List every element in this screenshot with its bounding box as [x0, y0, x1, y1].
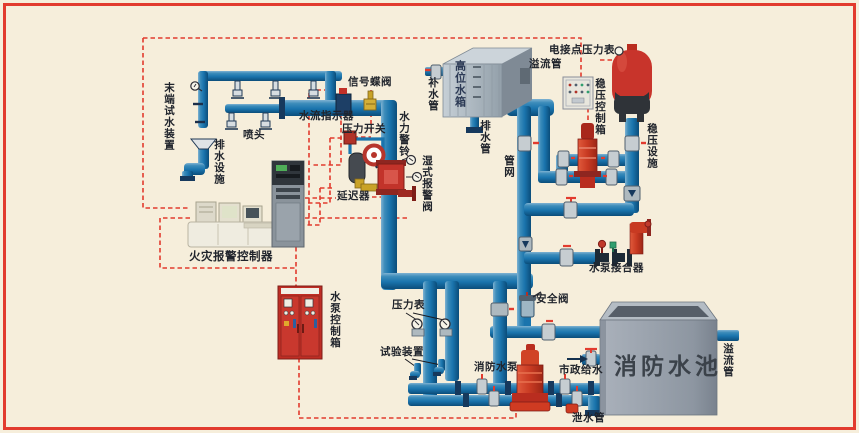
label-sprinkler: 喷头	[243, 130, 265, 141]
label-fire-alarm-controller: 火灾报警控制器	[189, 250, 273, 262]
server-rack	[272, 161, 304, 247]
electric-contact-gauge-icon	[615, 47, 623, 55]
retarder-device	[349, 153, 365, 183]
signal-butterfly-valve-device	[364, 91, 376, 110]
elevated-water-tank	[425, 48, 532, 117]
label-stabilizer-facility: 稳压设施	[646, 123, 657, 169]
label-municipal-water: 市政给水	[559, 365, 603, 376]
label-stabilizer-control-box: 稳压控制箱	[594, 78, 605, 128]
label-elevated-tank: 高位水箱	[454, 60, 466, 108]
label-flow-indicator: 水流指示器	[299, 111, 354, 122]
label-retarder: 延迟器	[337, 191, 370, 202]
label-drain-facility: 排水设施	[213, 139, 224, 185]
label-bottom-drain-pipe: 泄水管	[572, 413, 605, 424]
label-pump-control-cabinet: 水泵控制箱	[329, 291, 340, 355]
label-hydraulic-alarm-bell: 水力警铃	[398, 111, 409, 159]
pipe-couplings	[491, 303, 514, 316]
label-tank-drain-pipe: 排水管	[479, 120, 490, 160]
label-overflow-pipe-pool: 溢流管	[722, 343, 733, 383]
label-pressure-gauge: 压力表	[392, 300, 425, 311]
label-signal-butterfly-valve: 信号蝶阀	[348, 77, 392, 88]
label-fire-pump: 消防水泵	[474, 362, 518, 373]
pump-control-cabinet-device	[278, 286, 322, 359]
label-pipe-network: 管网	[503, 155, 514, 187]
label-safety-valve: 安全阀	[536, 294, 569, 305]
fire-alarm-console	[188, 202, 280, 247]
label-overflow-pipe-tank: 溢流管	[529, 59, 562, 70]
label-fire-pool: 消防水池	[614, 355, 722, 379]
pressure-tank	[612, 44, 652, 122]
label-pump-adapter: 水泵接合器	[589, 263, 644, 274]
fire-pump-device	[510, 344, 550, 411]
label-pressure-switch: 压力开关	[342, 124, 386, 135]
fire-sprinkler-system-diagram: 末端试水装置 喷头 排水设施 水流指示器 信号蝶阀 压力开关 水力警铃 延迟器 …	[0, 0, 859, 433]
label-test-device: 试验装置	[380, 347, 424, 358]
label-wet-alarm-valve: 湿式报警阀	[421, 155, 432, 211]
label-makeup-pipe: 补水管	[427, 77, 438, 117]
label-terminal-test-device: 末端试水装置	[163, 82, 174, 146]
stabilizer-control-box	[563, 77, 593, 109]
test-outlet-spout	[409, 363, 421, 380]
label-electric-contact-gauge: 电接点压力表	[549, 45, 615, 56]
